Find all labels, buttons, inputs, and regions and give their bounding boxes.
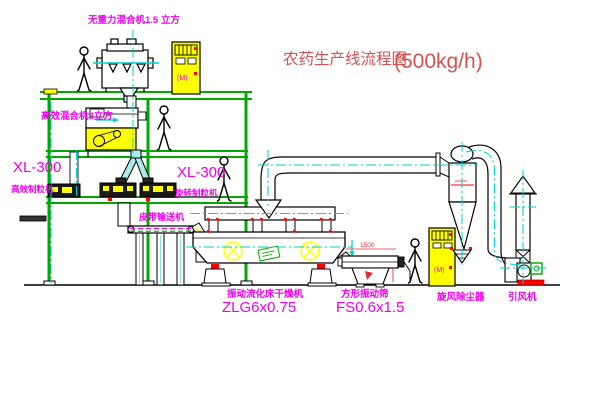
indicator-dot: [449, 266, 452, 269]
control-cabinet-top: (M): [172, 42, 200, 94]
gravity-mixer-label: 无重力混合机1.5 立方: [87, 14, 180, 26]
control-cabinet-right: (M): [429, 228, 455, 286]
belt-conveyor-label: 皮带输送机: [138, 211, 184, 222]
left-granulator-model: XL-300: [13, 159, 61, 176]
indicator-dot: [194, 72, 197, 75]
fan-base: [518, 280, 544, 285]
title-capacity: (500kg/h): [394, 50, 483, 73]
efficient-mixer-label: 高效混合机3立方: [41, 110, 113, 122]
indicator-dot: [449, 233, 452, 236]
title-cn: 农药生产线流程图: [283, 50, 407, 68]
fan-label: 引风机: [508, 291, 537, 303]
dryer-model-label: ZLG6x0.75: [222, 299, 296, 316]
worker-figure: [409, 239, 423, 283]
left-landing: [20, 216, 46, 221]
inlet-reducer: [440, 157, 449, 177]
cyclone-label: 旋风除尘器: [436, 291, 485, 303]
induced-draft-fan: [505, 258, 544, 285]
mid-granulator-model: XL-300: [177, 164, 225, 181]
cabinet-indicator-label: (M): [177, 75, 188, 82]
cabinet-indicator-label: (M): [434, 267, 445, 274]
roof-yellow-pad: [44, 89, 57, 94]
worker-figure: [158, 106, 172, 150]
efficient-mixer: [86, 96, 146, 157]
indicator-dot: [194, 47, 197, 50]
worker-figure: [78, 47, 92, 91]
drawing-canvas: (M): [0, 0, 600, 403]
left-granulator-name: 高效制粒机: [11, 184, 54, 194]
mid-granulator-name: 旋转制粒机: [174, 188, 218, 198]
screen-model-label: FS0.6x1.5: [336, 299, 404, 316]
dimension-1500: 1500: [360, 242, 375, 249]
cad-flow-diagram: (M): [0, 0, 600, 403]
